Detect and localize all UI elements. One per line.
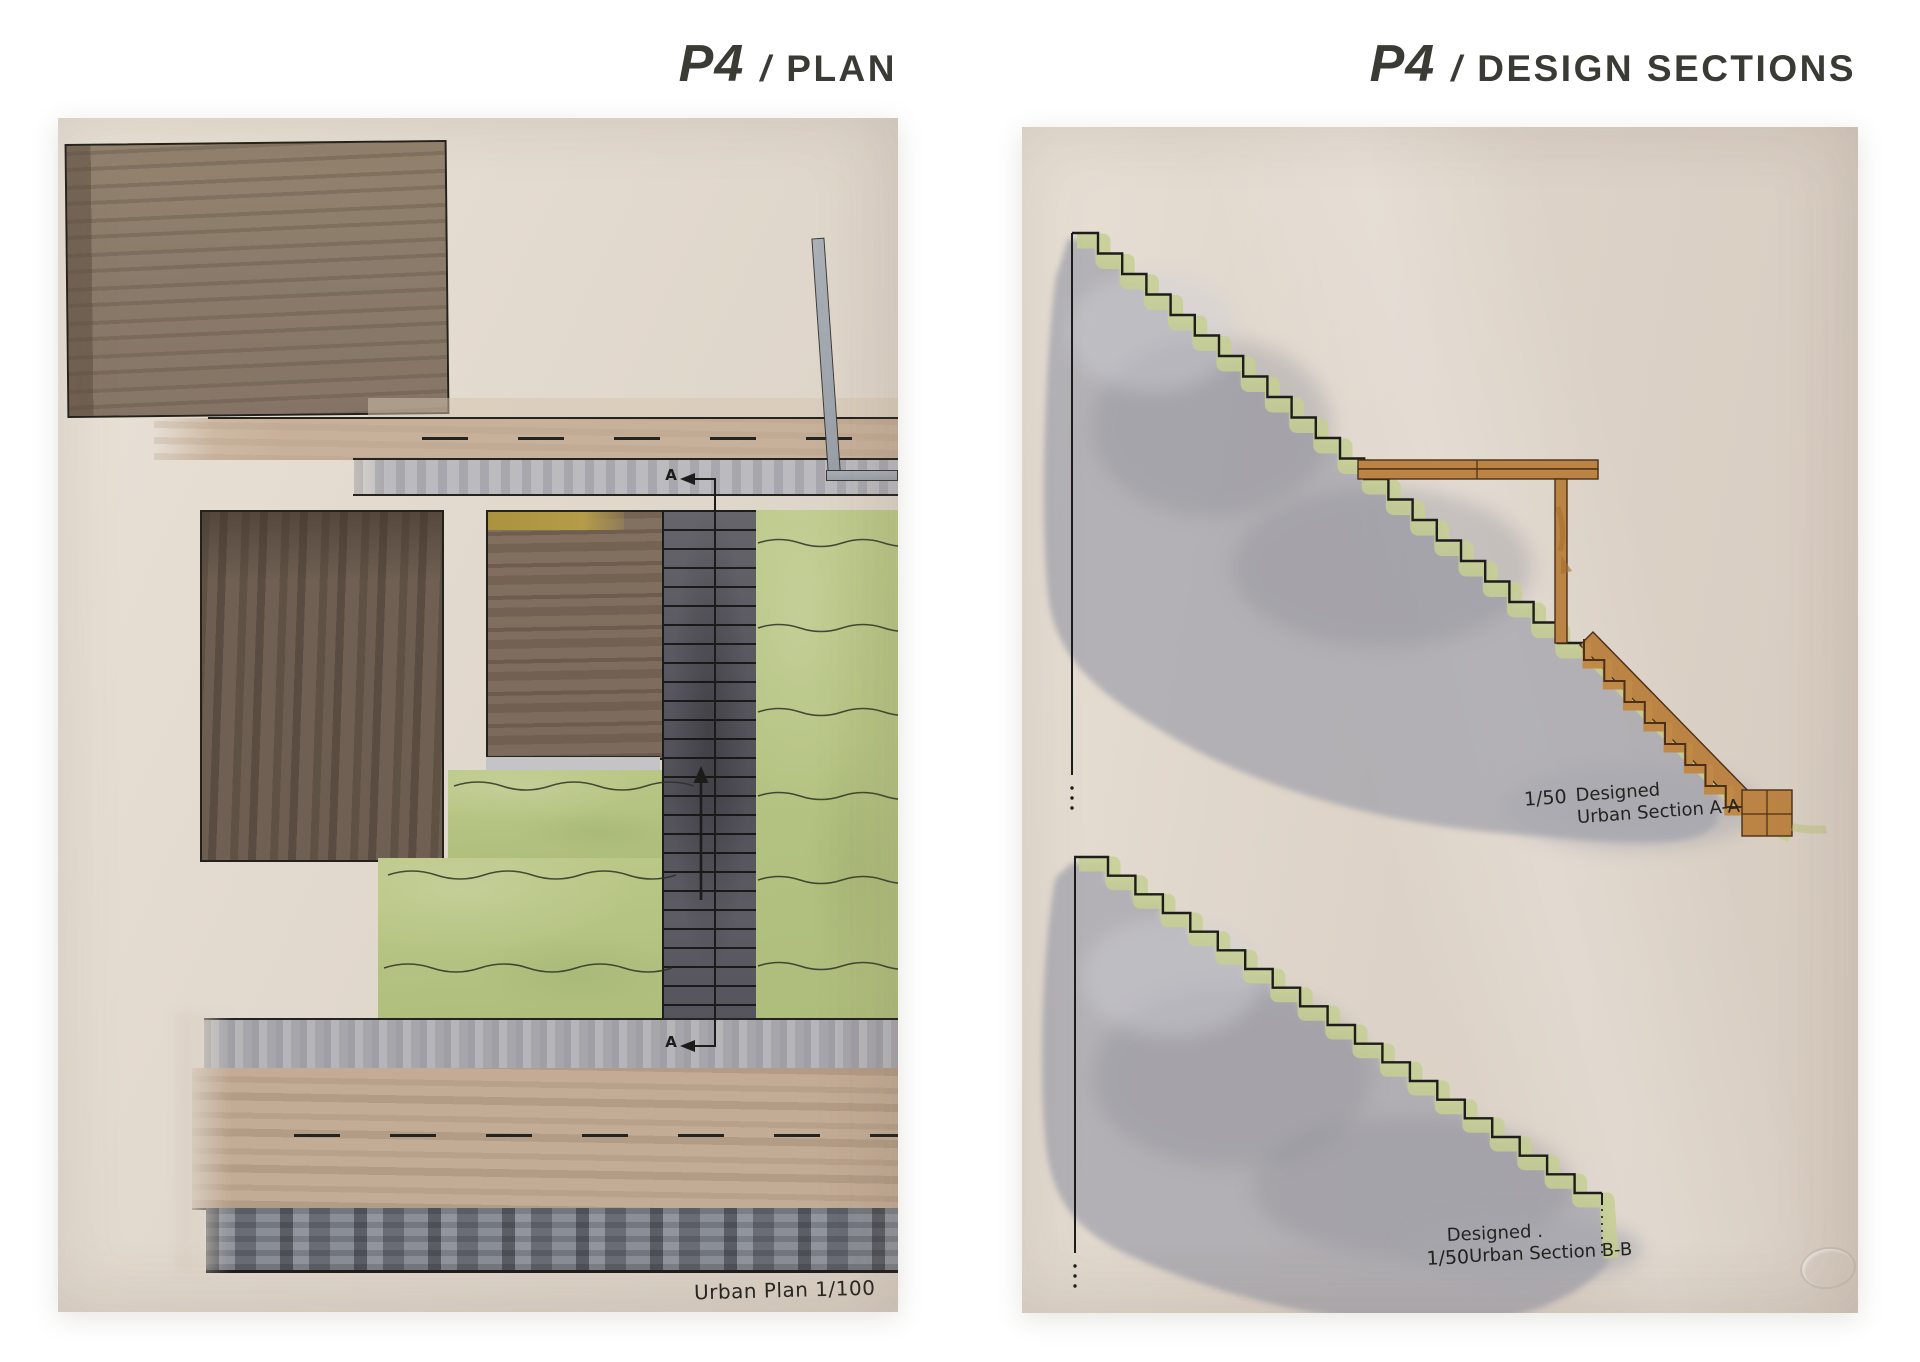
presentation-board-photo: { "titles": { "left": { "code": "P4", "s… [0,0,1920,1362]
lawn-contour-waves-left [384,782,694,972]
section-marker-letter-top: A [658,466,684,484]
sections-title-label: DESIGN SECTIONS [1477,48,1856,90]
sections-title-separator: / [1451,48,1461,90]
sections-title: P4 / DESIGN SECTIONS [1370,34,1856,94]
plan-caption: Urban Plan 1/100 [694,1276,876,1305]
section-a-drawing [1044,233,1826,849]
plan-title-separator: / [760,48,770,90]
section-b-label: Designed . 1/50 Urban Section B-B [1425,1224,1470,1270]
sections-drawing [1022,127,1858,1313]
section-a-label: 1/50 Designed Urban Section A-A [1523,785,1576,811]
section-cut-line-a [680,473,715,1052]
section-marker-letter-bottom: A [658,1033,684,1051]
plan-title-code: P4 [679,34,745,94]
section-b-scale: 1/50 [1426,1246,1470,1270]
stair-direction-arrow-icon [694,766,709,900]
plan-annotations-overlay [58,118,898,1312]
sections-title-code: P4 [1370,34,1436,94]
sections-sheet: 1/50 Designed Urban Section A-A Designed… [1022,127,1858,1313]
plan-sheet: A A Urban Plan 1/100 [58,118,898,1312]
section-a-scale: 1/50 [1523,786,1567,811]
plan-title: P4 / PLAN [679,34,897,94]
lawn-contour-waves-right [758,540,898,970]
plan-title-label: PLAN [786,48,897,90]
